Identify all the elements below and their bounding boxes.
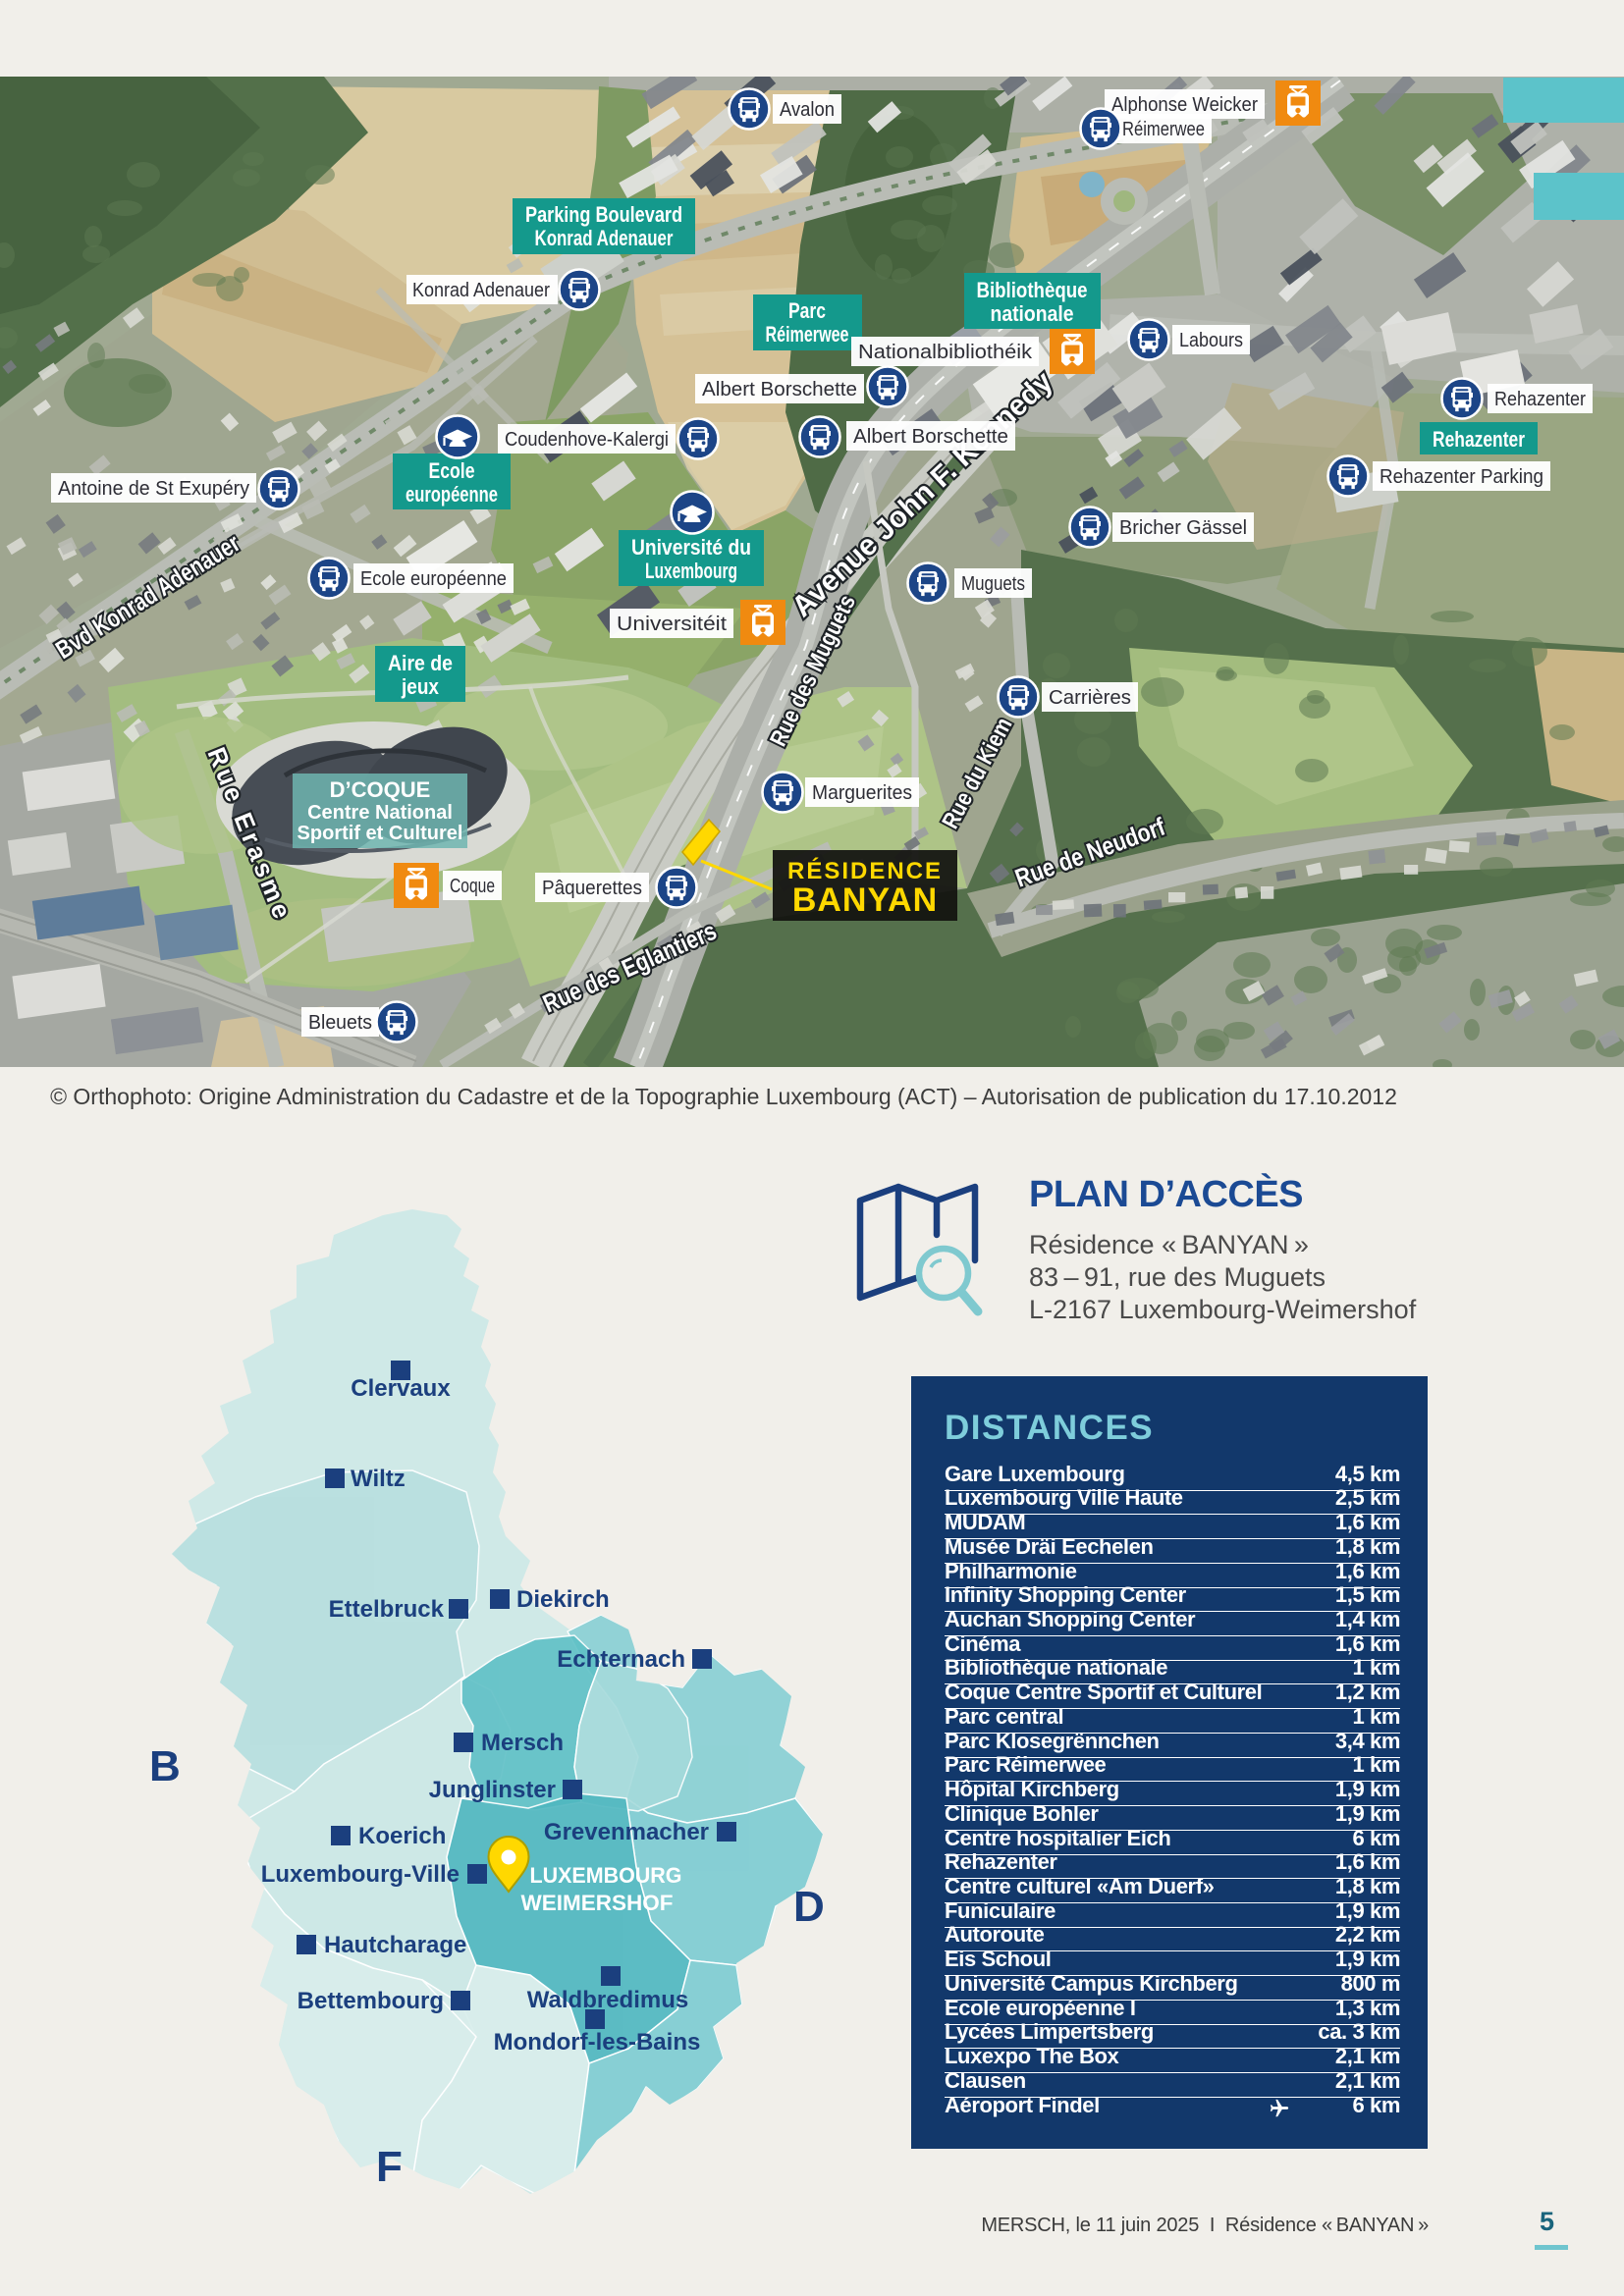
svg-text:Junglinster: Junglinster — [429, 1777, 556, 1803]
svg-text:Hautcharage: Hautcharage — [324, 1932, 466, 1958]
svg-text:Waldbredimus: Waldbredimus — [527, 1987, 688, 2013]
svg-text:Echternach: Echternach — [557, 1646, 685, 1673]
svg-text:Diekirch: Diekirch — [516, 1586, 610, 1613]
svg-text:LUXEMBOURG: LUXEMBOURG — [530, 1863, 682, 1888]
svg-text:WEIMERSHOF: WEIMERSHOF — [521, 1891, 674, 1915]
svg-text:Mondorf-les-Bains: Mondorf-les-Bains — [494, 2029, 701, 2056]
svg-text:Koerich: Koerich — [358, 1823, 446, 1849]
svg-text:Bettembourg: Bettembourg — [298, 1988, 444, 2014]
svg-text:Luxembourg-Ville: Luxembourg-Ville — [261, 1861, 460, 1888]
svg-text:Grevenmacher: Grevenmacher — [544, 1819, 709, 1845]
svg-text:Wiltz: Wiltz — [351, 1466, 406, 1492]
svg-text:Clervaux: Clervaux — [351, 1375, 451, 1402]
svg-text:Mersch: Mersch — [481, 1730, 564, 1756]
svg-text:Ettelbruck: Ettelbruck — [329, 1596, 445, 1623]
